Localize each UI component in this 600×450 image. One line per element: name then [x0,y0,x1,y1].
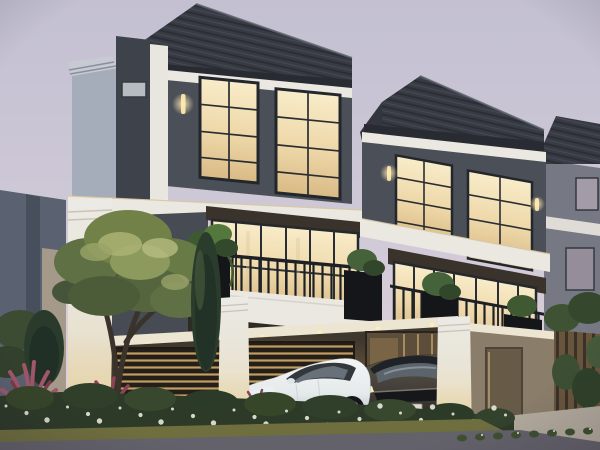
scene-canvas [0,0,600,450]
townhouse-dusk-render [0,0,600,450]
vignette-overlay [0,0,600,450]
